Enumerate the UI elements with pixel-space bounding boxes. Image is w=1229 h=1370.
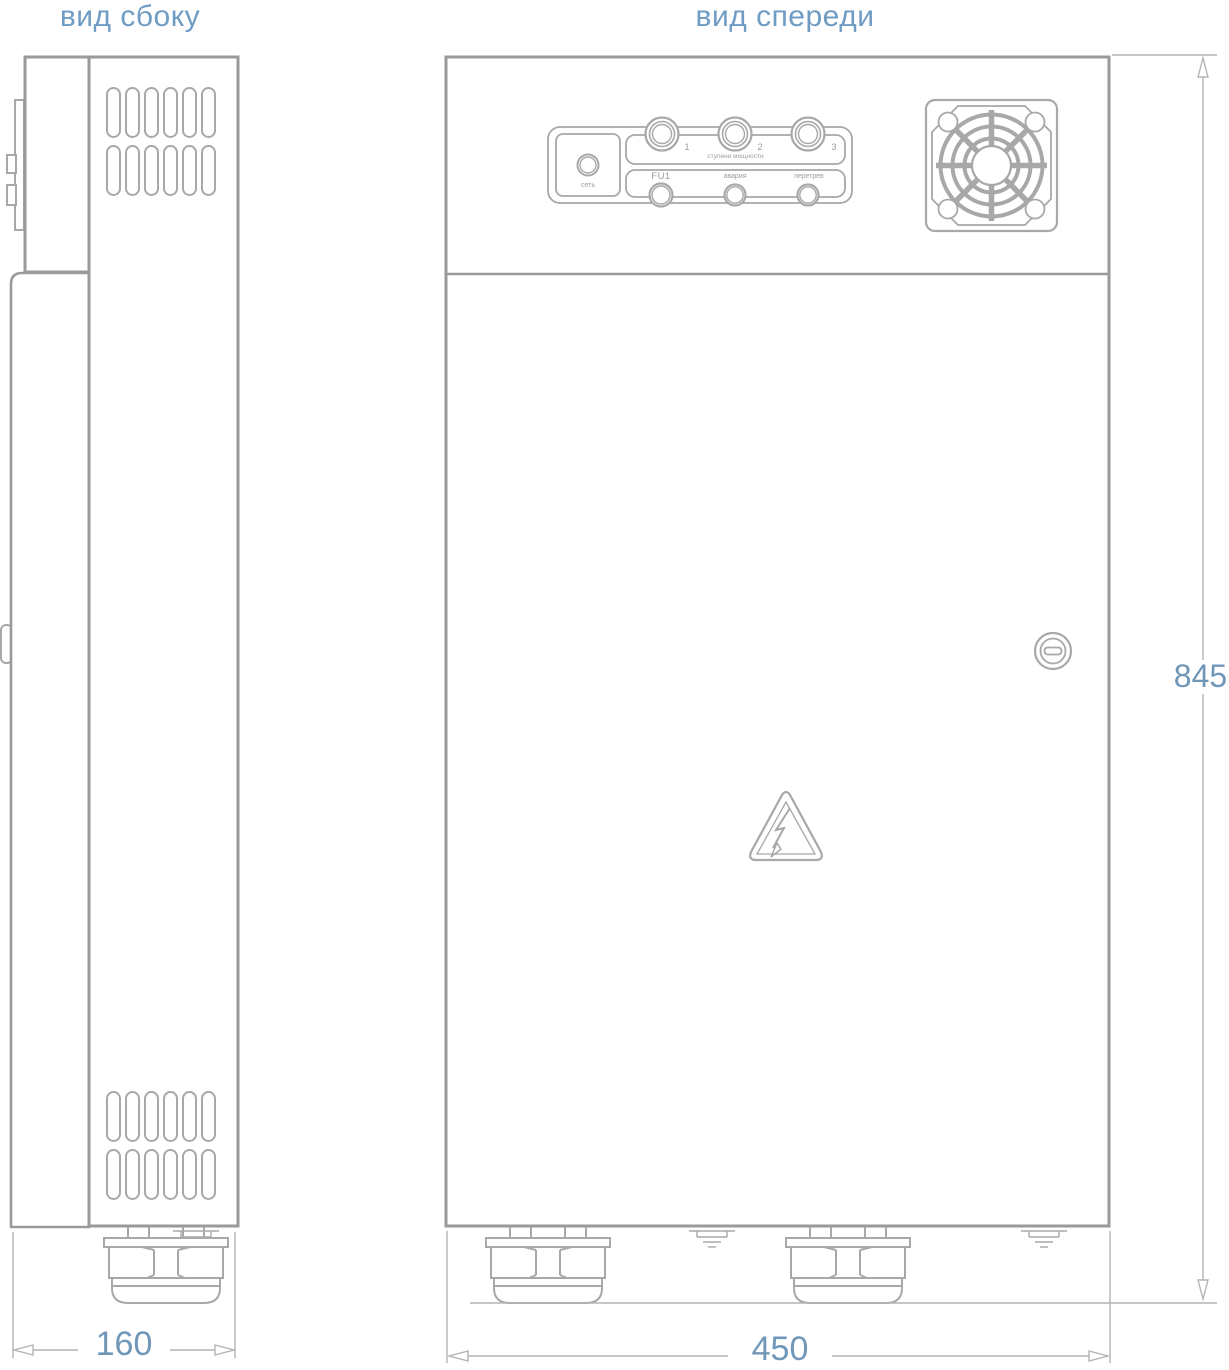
cable-gland-icon — [786, 1227, 910, 1303]
cable-gland-icon — [486, 1227, 610, 1303]
cable-gland-icon — [104, 1227, 228, 1303]
fuse-label: FU1 — [639, 171, 683, 182]
ground-symbol-icon — [1021, 1231, 1067, 1247]
stage-3-label: 3 — [828, 142, 840, 152]
fuse-holder-icon — [650, 184, 673, 207]
power-indicator-label: сеть — [556, 182, 620, 189]
side-main-body — [89, 57, 238, 1226]
overheat-label: перегрев — [782, 173, 836, 180]
side-door-panel — [11, 273, 89, 1227]
overheat-lamp-icon — [798, 185, 819, 206]
stage-lamp-1-icon — [646, 118, 679, 151]
side-view — [1, 57, 238, 1303]
stage-lamp-3-icon — [792, 118, 825, 151]
power-stages-label: ступени мощности — [626, 153, 845, 160]
technical-drawing: вид сбоку вид спереди сеть ступени мощно… — [0, 0, 1229, 1370]
front-view — [446, 57, 1109, 1303]
ground-symbol-icon — [689, 1231, 735, 1247]
fan-grille-icon — [926, 100, 1057, 231]
front-enclosure — [446, 57, 1109, 1226]
side-view-title: вид сбоку — [30, 0, 230, 34]
front-view-title: вид спереди — [655, 0, 915, 34]
height-dimension-value: 845 — [1172, 660, 1229, 694]
front-width-dimension-value: 450 — [728, 1332, 832, 1368]
line-artwork — [0, 0, 1229, 1370]
side-depth-dimension-value: 160 — [78, 1327, 170, 1363]
stage-1-label: 1 — [681, 142, 693, 152]
mounting-bracket — [7, 100, 24, 230]
stage-2-label: 2 — [754, 142, 766, 152]
stage-lamp-2-icon — [719, 118, 752, 151]
side-back-column — [25, 57, 90, 272]
alarm-label: авария — [711, 173, 759, 180]
power-lamp-icon — [578, 155, 599, 176]
alarm-lamp-icon — [725, 185, 746, 206]
